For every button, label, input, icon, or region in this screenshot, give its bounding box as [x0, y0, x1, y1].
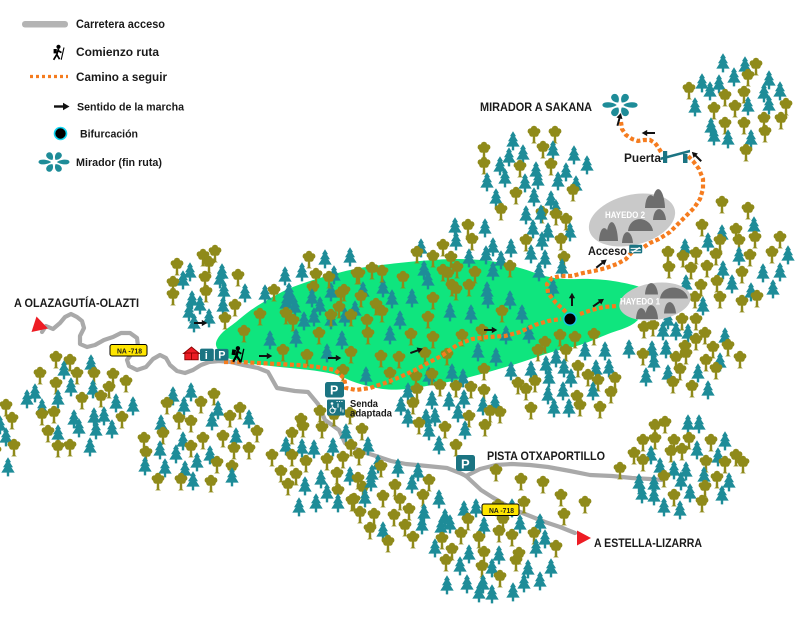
svg-text:Carretera acceso: Carretera acceso	[76, 17, 165, 31]
svg-text:HAYEDO 1: HAYEDO 1	[620, 297, 661, 308]
svg-text:P: P	[330, 384, 338, 398]
svg-text:P: P	[461, 457, 470, 472]
svg-text:NA -718: NA -718	[489, 506, 514, 515]
svg-text:P: P	[218, 350, 225, 362]
svg-text:Mirador (fin ruta): Mirador (fin ruta)	[76, 157, 162, 169]
svg-text:adaptada: adaptada	[350, 409, 392, 420]
svg-text:A ESTELLA-LIZARRA: A ESTELLA-LIZARRA	[594, 538, 702, 550]
svg-text:Bifurcación: Bifurcación	[80, 129, 138, 141]
svg-text:i: i	[205, 350, 208, 362]
svg-text:PISTA OTXAPORTILLO: PISTA OTXAPORTILLO	[487, 449, 605, 463]
svg-text:MIRADOR A SAKANA: MIRADOR A SAKANA	[480, 102, 592, 114]
svg-text:Comienzo ruta: Comienzo ruta	[76, 45, 159, 59]
svg-text:NA -718: NA -718	[117, 346, 142, 355]
svg-text:A OLAZAGUTÍA-OLAZTI: A OLAZAGUTÍA-OLAZTI	[14, 297, 139, 310]
svg-text:Puerta: Puerta	[624, 153, 662, 165]
svg-text:Acceso: Acceso	[588, 246, 627, 258]
svg-text:Sentido de la marcha: Sentido de la marcha	[77, 102, 185, 114]
svg-text:HAYEDO 2: HAYEDO 2	[605, 210, 645, 221]
svg-text:Camino a seguir: Camino a seguir	[76, 70, 167, 84]
